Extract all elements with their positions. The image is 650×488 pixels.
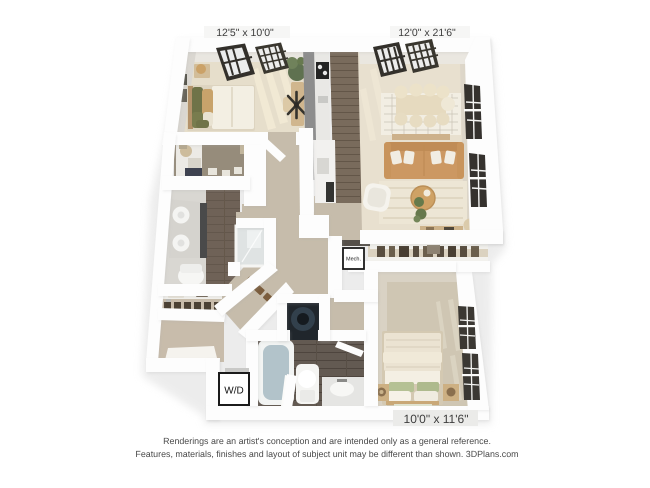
svg-text:W/D: W/D [224, 385, 243, 396]
svg-text:Features, materials, finishes: Features, materials, finishes and layout… [135, 449, 518, 459]
svg-text:Renderings are an artist's con: Renderings are an artist's conception an… [163, 436, 491, 446]
svg-text:Mech.: Mech. [346, 256, 361, 262]
svg-text:12'0" x 21'6": 12'0" x 21'6" [398, 27, 456, 39]
svg-text:12'5" x 10'0": 12'5" x 10'0" [216, 27, 274, 39]
svg-text:10'0" x 11'6": 10'0" x 11'6" [404, 412, 469, 426]
